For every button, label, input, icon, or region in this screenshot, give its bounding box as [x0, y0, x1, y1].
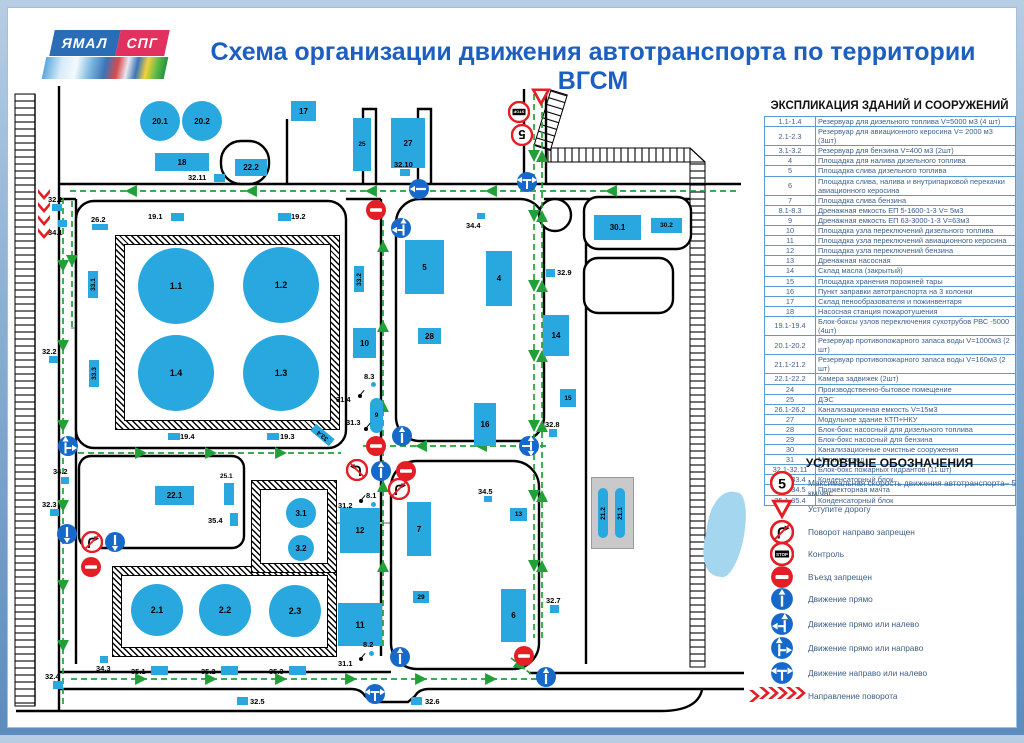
- explication-number: 11: [765, 236, 816, 246]
- fence-top-right: [548, 148, 705, 162]
- legend-item-label: Максимальная скорость движения автотранс…: [808, 478, 1018, 498]
- water-reservoir-pad: [591, 477, 634, 549]
- explication-row: 17Склад пенообразователя и пожинвентаря: [765, 296, 1016, 306]
- legend-item-straight: Движение прямо: [756, 587, 1018, 613]
- explication-row: 24Производственно-бытовое помещение: [765, 384, 1016, 394]
- explication-number: 2.1-2.3: [765, 127, 816, 146]
- explication-row: 16Пункт заправки автотранспорта на 3 кол…: [765, 286, 1016, 296]
- explication-description: Блок-боксы узлов переключения сухотрубов…: [816, 316, 1016, 335]
- legend-item-straight-or-left: Движение прямо или налево: [756, 612, 1018, 638]
- explication-number: 9: [765, 215, 816, 225]
- explication-row: 26.1-26.2Канализационная емкость V=15м3: [765, 404, 1016, 414]
- explication-row: 12Площадка узла переключений бензина: [765, 246, 1016, 256]
- explication-row: 10Площадка узла переключений дизельного …: [765, 226, 1016, 236]
- explication-number: 18: [765, 306, 816, 316]
- legend-item-label: Поворот направо запрещен: [808, 527, 915, 537]
- explication-number: 1.1-1.4: [765, 117, 816, 127]
- explication-description: Пункт заправки автотранспорта на 3 колон…: [816, 286, 1016, 296]
- explication-row: 6Площадка слива, налива и внутрипарковой…: [765, 176, 1016, 195]
- explication-description: Площадка узла переключений дизельного то…: [816, 226, 1016, 236]
- explication-row: 8.1-8.3Дренажная емкость ЕП 5-1600-1-3 V…: [765, 205, 1016, 215]
- explication-description: Площадка хранения порожней тары: [816, 276, 1016, 286]
- explication-row: 21.1-21.2Резервуар противопожарного запа…: [765, 355, 1016, 374]
- explication-row: 14Склад масла (закрытый): [765, 266, 1016, 276]
- explication-description: Площадка слива бензина: [816, 195, 1016, 205]
- explication-table: 1.1-1.4Резервуар для дизельного топлива …: [764, 116, 1016, 506]
- legend-item-label: Въезд запрещен: [808, 572, 872, 582]
- svg-text:5: 5: [778, 476, 786, 492]
- explication-description: Площадка слива дизельного топлива: [816, 166, 1016, 176]
- explication-number: 30: [765, 445, 816, 455]
- explication-description: Дренажная емкость ЕП 5-1600-1-3 V= 5м3: [816, 205, 1016, 215]
- yamal-spg-logo: ЯМАЛ СПГ: [38, 30, 168, 86]
- legend-item-turn-direction: Направление поворота: [756, 684, 1018, 710]
- legend-item-label: Направление поворота: [808, 691, 898, 701]
- explication-number: 17: [765, 296, 816, 306]
- explication-description: Резервуар для авиационного керосина V= 2…: [816, 127, 1016, 146]
- explication-row: 18Насосная станция пожаротушения: [765, 306, 1016, 316]
- legend-item-label: Движение направо или налево: [808, 668, 927, 678]
- explication-row: 3.1-3.2Резервуар для бензина V=400 м3 (2…: [765, 146, 1016, 156]
- legend-item-speed-limit-5: 5Максимальная скорость движения автотран…: [756, 471, 1018, 497]
- legend-item-label: Уступите дорогу: [808, 504, 871, 514]
- explication-description: Производственно-бытовое помещение: [816, 384, 1016, 394]
- explication-row: 9Дренажная емкость ЕП 63-3000-1-3 V=63м3: [765, 215, 1016, 225]
- poster-page: ЯМАЛ СПГ Схема организации движения авто…: [7, 7, 1017, 728]
- legend-item-label: Движение прямо или налево: [808, 619, 919, 629]
- explication-number: 15: [765, 276, 816, 286]
- explication-description: Площадка узла переключений бензина: [816, 246, 1016, 256]
- explication-number: 6: [765, 176, 816, 195]
- explication-row: 2.1-2.3Резервуар для авиационного кероси…: [765, 127, 1016, 146]
- explication-description: Резервуар для дизельного топлива V=5000 …: [816, 117, 1016, 127]
- explication-number: 28: [765, 424, 816, 434]
- explication-number: 21.1-21.2: [765, 355, 816, 374]
- explication-row: 7Площадка слива бензина: [765, 195, 1016, 205]
- site-plan: 20.120.2171822.2252730.130.2542810161415…: [11, 86, 756, 736]
- railway-fence-left: [15, 94, 35, 706]
- legend-item-label: Движение прямо или направо: [808, 643, 923, 653]
- explication-description: Площадка узла переключений авиационного …: [816, 236, 1016, 246]
- tank-farm-petrol-bund: [251, 480, 337, 573]
- turn-direction-icon: [758, 684, 810, 707]
- explication-description: Площадка слива, налива и внутрипарковой …: [816, 176, 1016, 195]
- fence-right: [690, 162, 705, 667]
- explication-number: 12: [765, 246, 816, 256]
- explication-description: Насосная станция пожаротушения: [816, 306, 1016, 316]
- explication-number: 7: [765, 195, 816, 205]
- explication-number: 13: [765, 256, 816, 266]
- logo-flag-strip: [42, 57, 169, 79]
- explication-number: 27: [765, 414, 816, 424]
- parking-hatch: [534, 90, 567, 150]
- explication-row: 15Площадка хранения порожней тары: [765, 276, 1016, 286]
- explication-row: 25ДЭС: [765, 394, 1016, 404]
- explication-row: 5Площадка слива дизельного топлива: [765, 166, 1016, 176]
- traffic-scheme-poster: { "header": { "logo_line1": "ЯМАЛ", "log…: [0, 0, 1024, 735]
- explication-description: Склад масла (закрытый): [816, 266, 1016, 276]
- explication-number: 24: [765, 384, 816, 394]
- explication-row: 27Модульное здание КТП+НКУ: [765, 414, 1016, 424]
- explication-row: 19.1-19.4Блок-боксы узлов переключения с…: [765, 316, 1016, 335]
- explication-description: Канализационная емкость V=15м3: [816, 404, 1016, 414]
- explication-number: 20.1-20.2: [765, 336, 816, 355]
- explication-description: Площадка для налива дизельного топлива: [816, 156, 1016, 166]
- explication-number: 26.1-26.2: [765, 404, 816, 414]
- explication-number: 29: [765, 435, 816, 445]
- explication-row: 13Дренажная насосная: [765, 256, 1016, 266]
- legend-item-label: Контроль: [808, 549, 844, 559]
- explication-description: Склад пенообразователя и пожинвентаря: [816, 296, 1016, 306]
- explication-description: Блок-бокс насосный для дизельного топлив…: [816, 424, 1016, 434]
- explication-description: Резервуар противопожарного запаса воды V…: [816, 336, 1016, 355]
- explication-row: 22.1-22.2Камера задвижек (2шт): [765, 374, 1016, 384]
- explication-description: Камера задвижек (2шт): [816, 374, 1016, 384]
- explication-description: Канализационные очистные сооружения: [816, 445, 1016, 455]
- tank-farm-diesel-bund: [115, 235, 340, 430]
- explication-description: Модульное здание КТП+НКУ: [816, 414, 1016, 424]
- explication-description: Блок-бокс насосный для бензина: [816, 435, 1016, 445]
- svg-text:STOP: STOP: [776, 552, 788, 557]
- explication-number: 14: [765, 266, 816, 276]
- explication-number: 3.1-3.2: [765, 146, 816, 156]
- logo-text-yamal: ЯМАЛ: [49, 30, 120, 56]
- explication-row: 1.1-1.4Резервуар для дизельного топлива …: [765, 117, 1016, 127]
- explication-description: Резервуар противопожарного запаса воды V…: [816, 355, 1016, 374]
- explication-row: 28Блок-бокс насосный для дизельного топл…: [765, 424, 1016, 434]
- explication-number: 16: [765, 286, 816, 296]
- explication-number: 19.1-19.4: [765, 316, 816, 335]
- explication-row: 20.1-20.2Резервуар противопожарного запа…: [765, 336, 1016, 355]
- explication-number: 25: [765, 394, 816, 404]
- explication-row: 4Площадка для налива дизельного топлива: [765, 156, 1016, 166]
- explication-row: 29Блок-бокс насосный для бензина: [765, 435, 1016, 445]
- tank-farm-kerosene-bund: [112, 566, 337, 657]
- explication-number: 10: [765, 226, 816, 236]
- explication-title: ЭКСПЛИКАЦИЯ ЗДАНИЙ И СООРУЖЕНИЙ: [763, 100, 1016, 112]
- explication-row: 11Площадка узла переключений авиационног…: [765, 236, 1016, 246]
- explication-number: 22.1-22.2: [765, 374, 816, 384]
- explication-description: Дренажная насосная: [816, 256, 1016, 266]
- explication-description: ДЭС: [816, 394, 1016, 404]
- explication-row: 30Канализационные очистные сооружения: [765, 445, 1016, 455]
- explication-number: 8.1-8.3: [765, 205, 816, 215]
- explication-number: 5: [765, 166, 816, 176]
- explication-description: Дренажная емкость ЕП 63-3000-1-3 V=63м3: [816, 215, 1016, 225]
- explication-description: Резервуар для бензина V=400 м3 (2шт): [816, 146, 1016, 156]
- speed-limit-5-icon: 5: [770, 471, 794, 500]
- legend-item-label: Движение прямо: [808, 594, 873, 604]
- legend-title: УСЛОВНЫЕ ОБОЗНАЧЕНИЯ: [763, 456, 1016, 470]
- legend-item-straight-or-right: Движение прямо или направо: [756, 636, 1018, 662]
- logo-text-spg: СПГ: [115, 30, 170, 56]
- explication-number: 4: [765, 156, 816, 166]
